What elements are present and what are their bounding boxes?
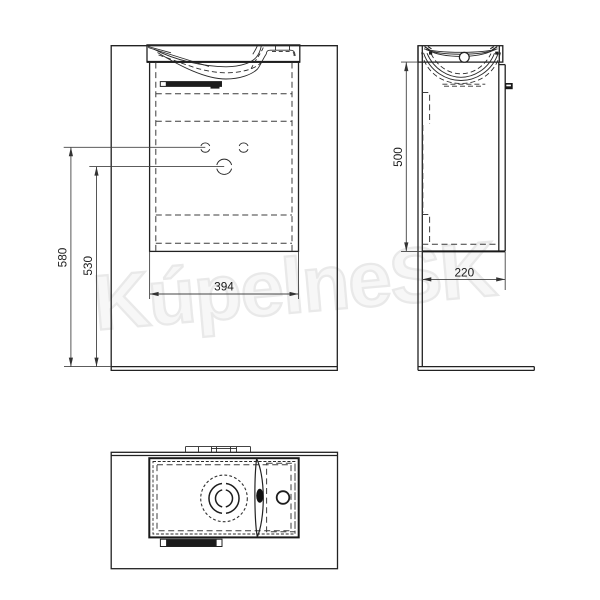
svg-text:580: 580 xyxy=(55,247,69,267)
svg-text:500: 500 xyxy=(391,147,405,167)
svg-text:530: 530 xyxy=(81,256,95,276)
svg-text:220: 220 xyxy=(454,265,474,279)
svg-text:394: 394 xyxy=(214,279,234,293)
